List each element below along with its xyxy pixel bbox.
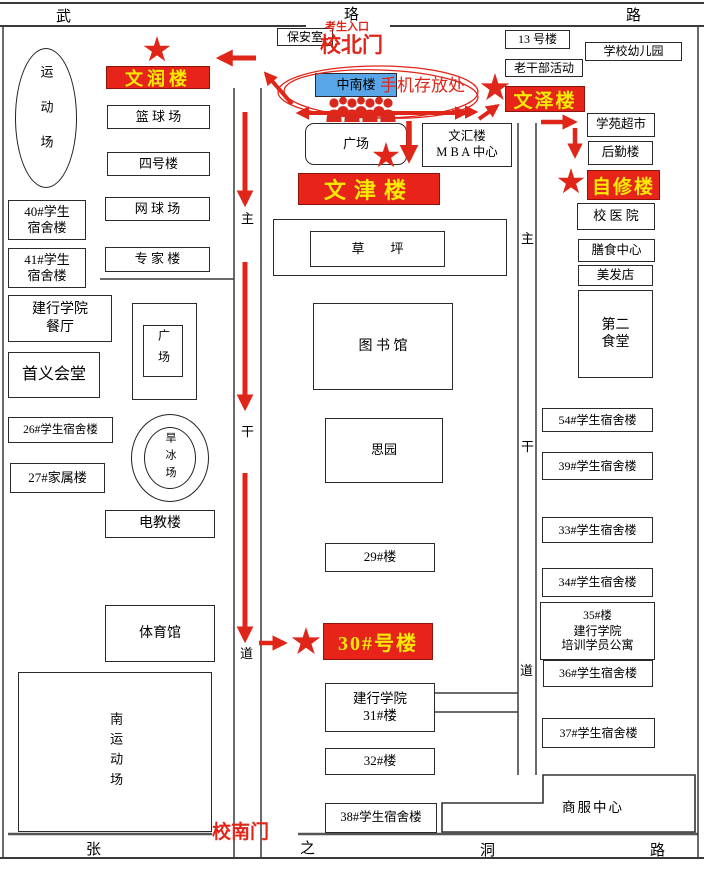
bottom-road-label-dong: 洞 xyxy=(480,839,495,860)
building-dianjiao: 电教楼 xyxy=(105,510,215,538)
building-label: 篮 球 场 xyxy=(136,109,182,125)
building-35-ccb-apartment: 35#楼 建行学院 培训学员公寓 xyxy=(540,602,655,660)
building-label-line1: 41#学生 xyxy=(24,252,70,268)
building-13: 13 号楼 xyxy=(505,30,570,49)
building-label: 29#楼 xyxy=(364,549,397,565)
campus-map: 武 珞 路 张 之 洞 路 主 干 道 主 干 道 运动场 40#学生 宿舍楼 … xyxy=(0,0,704,870)
building-label: 中南楼 xyxy=(336,77,375,93)
star-marker-zixiu-icon xyxy=(558,168,585,193)
building-label: 32#楼 xyxy=(364,753,397,769)
building-no4: 四号楼 xyxy=(107,152,210,176)
building-label: 后勤楼 xyxy=(602,145,640,161)
building-wenze-highlight: 文泽楼 xyxy=(505,86,585,112)
building-label: 电教楼 xyxy=(139,515,181,533)
building-ccb-canteen: 建行学院 餐厅 xyxy=(8,295,112,342)
building-label: 文津楼 xyxy=(324,173,414,205)
building-label-line2: 宿舍楼 xyxy=(27,220,66,236)
left-road-label-gan: 干 xyxy=(241,421,254,440)
building-label: 思园 xyxy=(371,442,397,458)
building-basketball-court: 篮 球 场 xyxy=(107,105,210,129)
building-veterans-activity: 老干部活动 xyxy=(505,59,583,77)
star-marker-building30-icon xyxy=(292,627,320,654)
building-supermarket: 学苑超市 xyxy=(587,113,655,137)
building-label-line2: M B A 中心 xyxy=(436,145,497,161)
building-wenrun-highlight: 文润楼 xyxy=(106,66,210,89)
crowd-people-icon xyxy=(326,97,395,122)
building-ccb-31: 建行学院 31#楼 xyxy=(325,683,435,732)
right-road-label-gan: 干 xyxy=(521,436,534,455)
building-label: 老干部活动 xyxy=(514,61,574,76)
right-road-label-dao: 道 xyxy=(520,660,533,679)
building-label: 首义会堂 xyxy=(22,365,86,385)
building-expert: 专 家 楼 xyxy=(105,247,210,272)
star-marker-wenrun-icon xyxy=(144,36,171,61)
top-road-label-wu: 武 xyxy=(56,5,71,26)
building-label: 39#学生宿舍楼 xyxy=(558,459,636,474)
building-label-line2: 食堂 xyxy=(602,334,630,352)
building-dorm-38: 38#学生宿舍楼 xyxy=(325,803,437,833)
building-lawn: 草 坪 xyxy=(310,231,445,267)
building-label: 保安室 xyxy=(287,30,323,45)
building-label: 旱冰场 xyxy=(162,432,178,483)
north-gate-label: 校北门 xyxy=(320,29,383,59)
building-tennis-court: 网 球 场 xyxy=(105,197,210,221)
building-label-line1: 第二 xyxy=(602,317,630,335)
building-29: 29#楼 xyxy=(325,543,435,572)
building-square-mid: 广场 xyxy=(305,123,407,165)
building-dorm-33: 33#学生宿舍楼 xyxy=(542,517,653,543)
bottom-road-label-zhang: 张 xyxy=(86,838,101,859)
building-dorm-34: 34#学生宿舍楼 xyxy=(542,568,653,597)
building-label: 膳食中心 xyxy=(591,243,641,259)
arrow-from-assembly-upleft-icon xyxy=(266,74,292,104)
building-label: 草 坪 xyxy=(351,241,403,257)
building-label-line2: 餐厅 xyxy=(46,319,74,337)
building-label: 33#学生宿舍楼 xyxy=(558,523,636,538)
building-label-line2: 宿舍楼 xyxy=(27,268,66,284)
building-label: 图 书 馆 xyxy=(359,338,408,356)
building-skating-rink: 旱冰场 xyxy=(144,427,196,489)
building-dorm-26: 26#学生宿舍楼 xyxy=(8,417,113,443)
building-houqin: 后勤楼 xyxy=(588,141,653,165)
phone-storage-label: 手机存放处 xyxy=(380,71,465,96)
building-dorm-39: 39#学生宿舍楼 xyxy=(542,452,653,480)
building-label: 36#学生宿舍楼 xyxy=(559,666,637,681)
top-road-label-lu: 路 xyxy=(626,4,641,25)
building-label: 38#学生宿舍楼 xyxy=(340,810,421,826)
building-label: 文润楼 xyxy=(125,65,191,91)
building-south-sports-field: 南运动场 xyxy=(18,672,212,832)
building-label: 自修楼 xyxy=(592,172,655,199)
building-hospital: 校 医 院 xyxy=(577,203,655,230)
building-label: 文泽楼 xyxy=(513,86,576,113)
arrow-to-wenze-diagonal-icon xyxy=(479,106,497,119)
building-library: 图 书 馆 xyxy=(313,303,453,390)
building-label: 37#学生宿舍楼 xyxy=(559,726,637,741)
building-label: 27#家属楼 xyxy=(28,470,87,486)
building-label-line2: 31#楼 xyxy=(363,708,397,725)
building-dorm-54: 54#学生宿舍楼 xyxy=(542,408,653,432)
right-road-label-zhu: 主 xyxy=(521,228,534,247)
building-label: 学苑超市 xyxy=(596,117,646,133)
building-wenhui-mba: 文汇楼 M B A 中心 xyxy=(422,123,512,167)
building-label: 13 号楼 xyxy=(518,32,557,47)
building-label: 南运动场 xyxy=(107,712,123,793)
bottom-road-label-zhi: 之 xyxy=(300,837,315,858)
bottom-road-label-lu: 路 xyxy=(650,839,665,860)
building-label: 54#学生宿舍楼 xyxy=(558,413,636,428)
building-dorm-40: 40#学生 宿舍楼 xyxy=(8,200,86,240)
building-label: 广场 xyxy=(343,136,369,152)
building-label: 34#学生宿舍楼 xyxy=(558,575,636,590)
building-label-line1: 文汇楼 xyxy=(448,129,486,145)
building-32: 32#楼 xyxy=(325,748,435,775)
building-label: 四号楼 xyxy=(139,156,178,172)
building-zixiu-highlight: 自修楼 xyxy=(587,170,660,200)
building-label: 30#号楼 xyxy=(338,627,418,656)
building-label-line1: 建行学院 xyxy=(353,691,407,708)
building-sports-field-oval: 运动场 xyxy=(15,48,77,188)
building-kindergarten: 学校幼儿园 xyxy=(585,42,682,61)
building-family-27: 27#家属楼 xyxy=(10,463,105,493)
building-label-line1: 40#学生 xyxy=(24,204,70,220)
building-gymnasium: 体育馆 xyxy=(105,605,215,662)
building-label-line3: 培训学员公寓 xyxy=(561,638,633,652)
building-business-center-label: 商服中心 xyxy=(562,796,624,816)
building-label: 体育馆 xyxy=(139,625,181,643)
building-label: 网 球 场 xyxy=(135,201,181,217)
building-dorm-37: 37#学生宿舍楼 xyxy=(542,718,655,748)
building-barber: 美发店 xyxy=(578,265,653,286)
building-label: 校 医 院 xyxy=(593,208,639,224)
building-dorm-41: 41#学生 宿舍楼 xyxy=(8,248,86,288)
building-shouyi-hall: 首义会堂 xyxy=(8,352,100,398)
building-30-highlight: 30#号楼 xyxy=(323,623,433,660)
building-label: 26#学生宿舍楼 xyxy=(23,423,98,437)
building-label: 学校幼儿园 xyxy=(603,44,663,59)
building-label: 广场 xyxy=(156,329,171,372)
building-wenjin-highlight: 文津楼 xyxy=(298,173,440,205)
building-canteen-2: 第二 食堂 xyxy=(578,290,653,378)
building-dorm-36: 36#学生宿舍楼 xyxy=(543,660,653,687)
building-label-line1: 建行学院 xyxy=(32,301,88,319)
building-label: 美发店 xyxy=(597,268,635,284)
building-square-left: 广场 xyxy=(143,325,183,377)
building-canteen-center: 膳食中心 xyxy=(578,239,655,262)
building-siyuan: 思园 xyxy=(325,418,443,483)
building-label: 专 家 楼 xyxy=(135,251,181,267)
building-label-line1: 35#楼 xyxy=(583,610,612,624)
left-road-label-zhu: 主 xyxy=(241,208,254,227)
left-road-label-dao: 道 xyxy=(240,643,253,662)
south-gate-label: 校南门 xyxy=(212,817,269,844)
building-label-line2: 建行学院 xyxy=(573,624,621,638)
building-label: 运动场 xyxy=(37,65,56,170)
